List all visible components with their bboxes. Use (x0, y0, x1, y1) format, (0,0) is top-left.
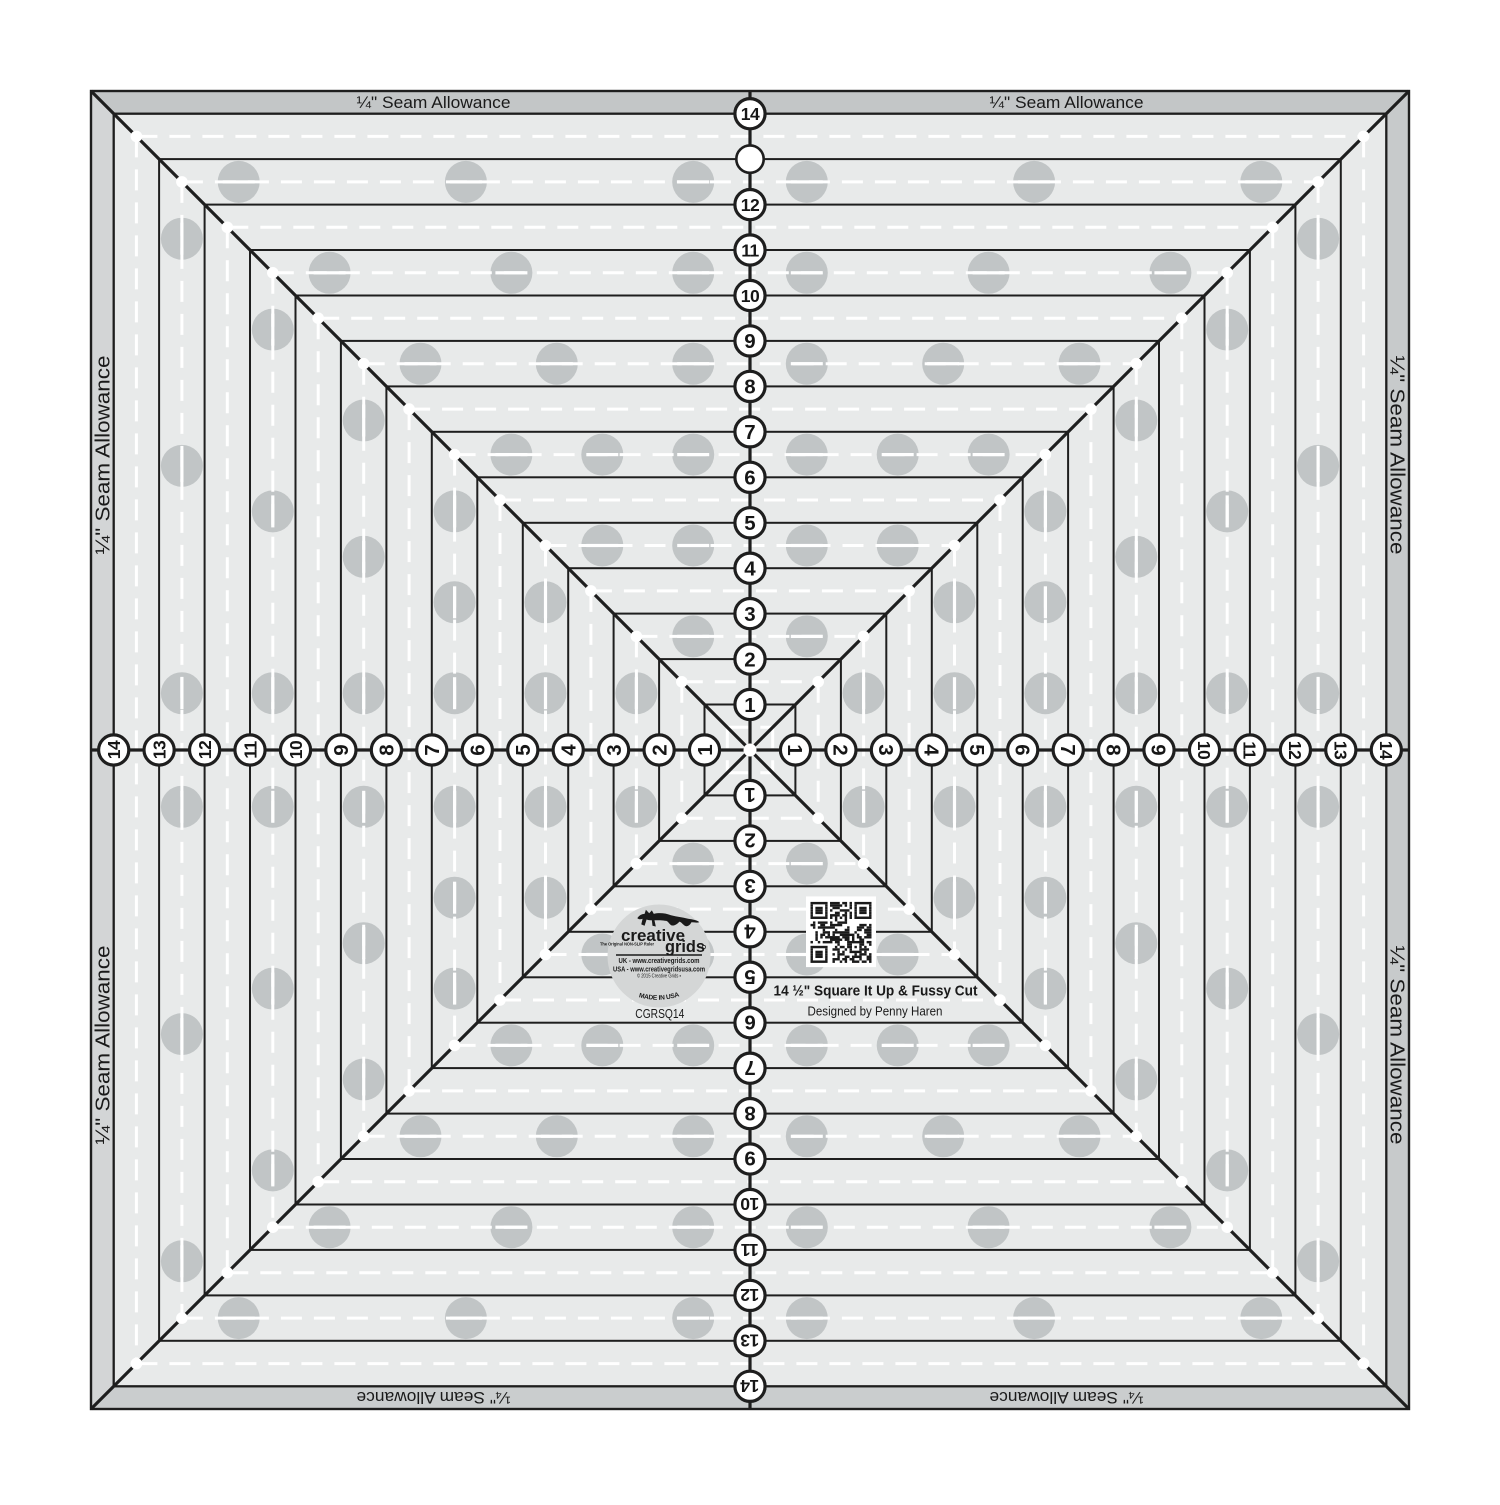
svg-text:USA - www.creativegridsusa.com: USA - www.creativegridsusa.com (613, 965, 705, 974)
svg-text:10: 10 (740, 1194, 759, 1214)
svg-text:10: 10 (741, 286, 760, 306)
svg-text:7: 7 (421, 744, 444, 755)
svg-text:6: 6 (1010, 744, 1033, 755)
svg-text:10: 10 (286, 740, 306, 759)
svg-text:4: 4 (558, 744, 581, 756)
svg-text:7: 7 (744, 1056, 755, 1079)
svg-text:14: 14 (741, 104, 760, 124)
svg-text:The Original NON-SLIP Ruler: The Original NON-SLIP Ruler (600, 942, 654, 947)
svg-text:© 2015 Creative Grids ▪: © 2015 Creative Grids ▪ (637, 972, 681, 979)
svg-text:3: 3 (603, 744, 626, 755)
svg-text:14: 14 (1376, 741, 1396, 760)
svg-text:5: 5 (512, 744, 535, 755)
svg-text:14: 14 (104, 740, 124, 759)
svg-text:¼" Seam Allowance: ¼" Seam Allowance (92, 356, 114, 555)
svg-text:9: 9 (744, 330, 755, 353)
svg-text:4: 4 (744, 558, 756, 581)
svg-text:11: 11 (740, 1240, 758, 1260)
svg-text:Designed by Penny Haren: Designed by Penny Haren (808, 1005, 943, 1019)
svg-text:11: 11 (1240, 741, 1260, 759)
svg-text:CGRSQ14: CGRSQ14 (635, 1007, 684, 1021)
svg-text:¼" Seam Allowance: ¼" Seam Allowance (990, 94, 1144, 112)
svg-text:8: 8 (744, 1101, 755, 1124)
svg-text:4: 4 (744, 920, 756, 943)
svg-text:6: 6 (744, 1010, 755, 1033)
svg-text:¼" Seam Allowance: ¼" Seam Allowance (1386, 946, 1408, 1145)
svg-text:¼" Seam Allowance: ¼" Seam Allowance (990, 1388, 1144, 1406)
svg-text:9: 9 (744, 1147, 755, 1170)
svg-text:8: 8 (744, 376, 755, 399)
svg-text:8: 8 (1101, 744, 1124, 755)
svg-text:6: 6 (467, 744, 490, 755)
svg-text:13: 13 (740, 1331, 759, 1351)
svg-text:1: 1 (694, 744, 717, 755)
svg-text:12: 12 (740, 1285, 759, 1305)
svg-text:2: 2 (744, 829, 755, 852)
svg-text:5: 5 (744, 512, 755, 535)
svg-text:6: 6 (744, 467, 755, 490)
svg-text:7: 7 (1056, 744, 1079, 755)
svg-text:2: 2 (648, 744, 671, 755)
svg-text:9: 9 (1147, 744, 1170, 755)
svg-text:2: 2 (744, 648, 755, 671)
svg-text:12: 12 (1285, 741, 1305, 760)
svg-text:grids: grids (665, 937, 705, 956)
svg-text:5: 5 (744, 965, 755, 988)
svg-text:14 ½" Square It Up & Fussy Cut: 14 ½" Square It Up & Fussy Cut (774, 983, 978, 1000)
svg-text:14: 14 (740, 1376, 759, 1396)
svg-text:5: 5 (965, 744, 988, 755)
svg-text:13: 13 (149, 740, 169, 759)
svg-text:3: 3 (874, 744, 897, 755)
svg-text:10: 10 (1194, 741, 1214, 760)
svg-text:3: 3 (744, 603, 755, 626)
svg-text:1: 1 (783, 744, 806, 755)
svg-text:¼" Seam Allowance: ¼" Seam Allowance (1386, 356, 1408, 555)
svg-text:¼" Seam Allowance: ¼" Seam Allowance (92, 946, 114, 1145)
svg-text:11: 11 (240, 740, 260, 758)
svg-text:11: 11 (741, 240, 759, 260)
svg-text:4: 4 (920, 744, 943, 756)
svg-text:13: 13 (1331, 741, 1351, 760)
svg-text:12: 12 (741, 195, 760, 215)
svg-text:1: 1 (744, 783, 755, 806)
svg-text:¼" Seam Allowance: ¼" Seam Allowance (357, 94, 511, 112)
svg-text:2: 2 (829, 744, 852, 755)
svg-text:9: 9 (330, 744, 353, 755)
svg-text:3: 3 (744, 874, 755, 897)
svg-text:8: 8 (376, 744, 399, 755)
svg-text:1: 1 (744, 694, 755, 717)
svg-text:7: 7 (744, 421, 755, 444)
svg-text:12: 12 (195, 740, 215, 759)
svg-text:¼" Seam Allowance: ¼" Seam Allowance (357, 1388, 511, 1406)
